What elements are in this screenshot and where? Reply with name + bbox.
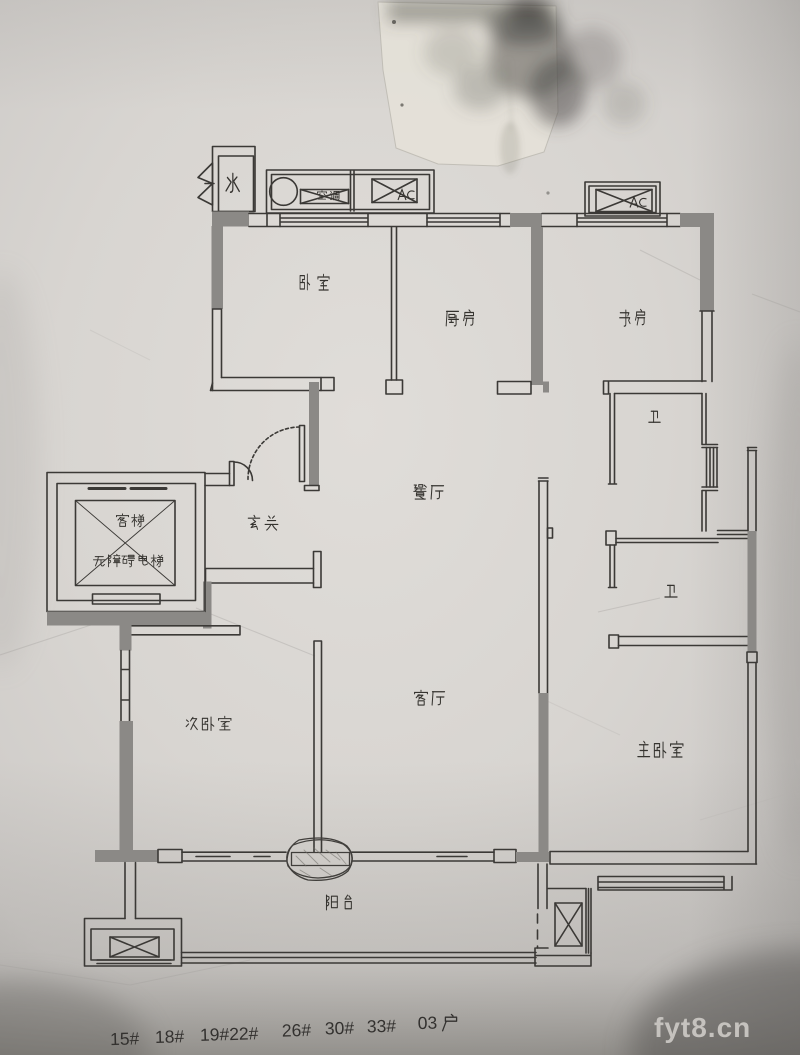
svg-text:03: 03 xyxy=(417,1013,437,1034)
svg-text:26#: 26# xyxy=(282,1020,312,1041)
svg-text:33#: 33# xyxy=(367,1016,397,1037)
svg-text:fyt8.cn: fyt8.cn xyxy=(654,1012,751,1043)
svg-text:15#: 15# xyxy=(110,1028,140,1049)
svg-text:18#: 18# xyxy=(155,1026,185,1047)
svg-text:19#22#: 19#22# xyxy=(200,1023,259,1045)
svg-text:30#: 30# xyxy=(325,1018,355,1039)
